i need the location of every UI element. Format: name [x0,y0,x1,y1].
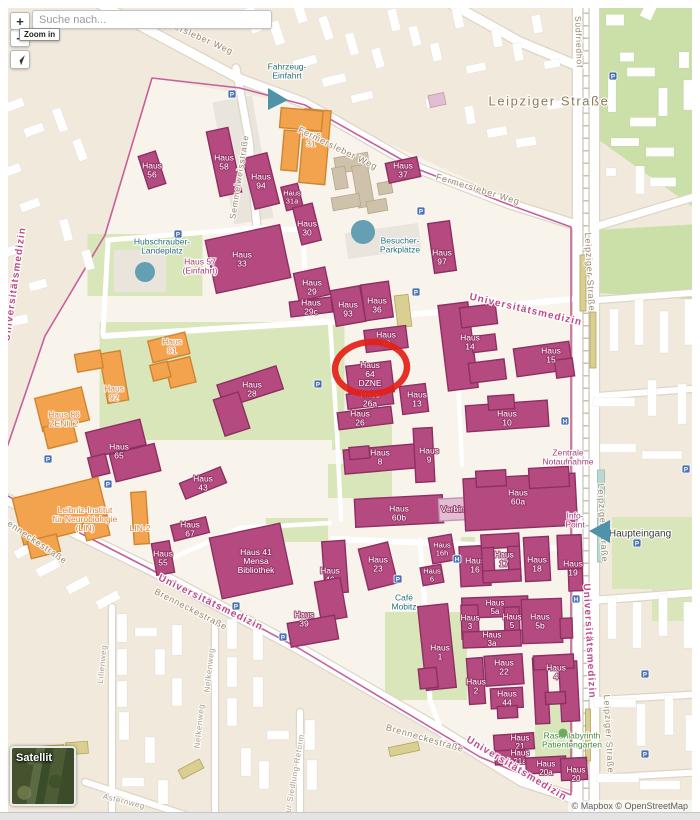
svg-text:Südfriedhof: Südfriedhof [573,16,585,69]
svg-text:Haus20a: Haus20a [537,760,556,777]
map-label-haus-57: Haus 57(Einfahrt) [183,257,218,276]
frame-top [0,0,700,8]
parking-icon: P [174,230,182,238]
svg-text:P: P [643,671,647,678]
satellite-toggle[interactable]: Satellit [10,746,76,806]
map-canvas[interactable]: Haus56Haus58Haus94Haus31Haus31aHaus30Hau… [0,0,700,820]
parking-icon: P [682,465,690,473]
svg-text:Info-Point: Info-Point [565,511,585,530]
transit-stop-icon: H [572,595,580,603]
frame-bottom [0,812,700,820]
svg-text:P: P [419,208,423,215]
map-label-fahrzeug-: Fahrzeug-Einfahrt [268,62,307,81]
svg-text:Haupteingang: Haupteingang [609,529,671,540]
svg-text:P: P [635,540,639,547]
building-lin-2[interactable] [131,492,150,545]
svg-text:Fahrzeug-Einfahrt: Fahrzeug-Einfahrt [268,62,307,81]
svg-text:Besucher-Parkplätze: Besucher-Parkplätze [380,236,420,255]
map-label-hubschrauber-: Hubschrauber-Landeplatz [134,237,190,256]
helipad-circle [135,262,155,282]
map-label-leipziger-straße: Leipziger Straße [489,94,610,109]
campus-map[interactable]: Haus56Haus58Haus94Haus31Haus31aHaus30Hau… [0,0,700,820]
map-label-info-: Info-Point [565,511,585,530]
map-label-haupteingang: Haupteingang [609,529,671,540]
svg-text:P: P [684,466,688,473]
parking-icon: P [633,539,641,547]
parking-icon: P [394,575,402,583]
svg-text:Haus 86ZENIT2: Haus 86ZENIT2 [48,410,80,429]
svg-text:Hubschrauber-Landeplatz: Hubschrauber-Landeplatz [134,237,190,256]
building-label-lin-2: LIN-2 [130,523,151,533]
svg-text:RasenlabyrinthPatientengarten: RasenlabyrinthPatientengarten [542,731,602,750]
plus-icon: + [16,14,24,29]
satellite-toggle-label: Satellit [16,752,52,764]
frame-left [0,0,8,820]
locate-arrow-icon [13,53,27,67]
svg-text:P: P [414,289,418,296]
svg-text:P: P [234,603,238,610]
svg-text:P: P [643,751,647,758]
transit-stop-icon: H [453,555,461,563]
parking-icon: P [104,480,112,488]
locate-button[interactable] [10,50,30,69]
map-attribution[interactable]: © Mapbox © OpenStreetMap [568,800,692,812]
svg-text:P: P [46,456,50,463]
parking-icon: P [232,602,240,610]
building-label-haus-60b: Haus60b [389,504,409,523]
parking-icon: P [641,750,649,758]
svg-text:LIN-2: LIN-2 [130,523,151,533]
svg-text:P: P [611,73,615,80]
parking-icon: P [417,207,425,215]
frame-right [692,0,700,820]
parking-icon: P [279,633,287,641]
svg-text:P: P [230,91,234,98]
map-label-rasenlabyrinth: RasenlabyrinthPatientengarten [542,731,602,750]
building-label-haus-60a: Haus60a [508,488,528,507]
zoom-in-tooltip: Zoom in [19,28,60,41]
svg-text:H: H [455,556,460,563]
svg-text:H: H [563,418,568,425]
transit-stop-icon: H [561,417,569,425]
svg-text:P: P [316,381,320,388]
svg-text:Leipziger Straße: Leipziger Straße [489,94,610,109]
svg-text:Haus60a: Haus60a [508,488,528,507]
parking-icon: P [228,90,236,98]
map-label-caf-: CaféMobitz [391,593,416,612]
parking-icon: P [314,380,322,388]
building-label-haus-20a: Haus20a [537,760,556,777]
svg-text:P: P [106,481,110,488]
map-label-besucher-: Besucher-Parkplätze [380,236,420,255]
svg-text:H: H [574,596,579,603]
garden-tree [559,729,568,738]
visitor-parking-circle [351,220,375,244]
parking-icon: P [609,72,617,80]
search-input[interactable] [32,10,272,29]
parking-icon: P [641,670,649,678]
building-label-haus-86-zenit2: Haus 86ZENIT2 [48,410,80,429]
svg-text:P: P [176,231,180,238]
svg-text:P: P [396,576,400,583]
svg-text:Haus 57(Einfahrt): Haus 57(Einfahrt) [183,257,218,276]
svg-text:Haus60b: Haus60b [389,504,409,523]
map-label-südfriedhof: Südfriedhof [573,16,585,69]
svg-text:P: P [281,634,285,641]
parking-icon: P [44,455,52,463]
svg-text:CaféMobitz: CaféMobitz [391,593,416,612]
app-window: Haus56Haus58Haus94Haus31Haus31aHaus30Hau… [0,0,700,820]
parking-icon: P [412,288,420,296]
